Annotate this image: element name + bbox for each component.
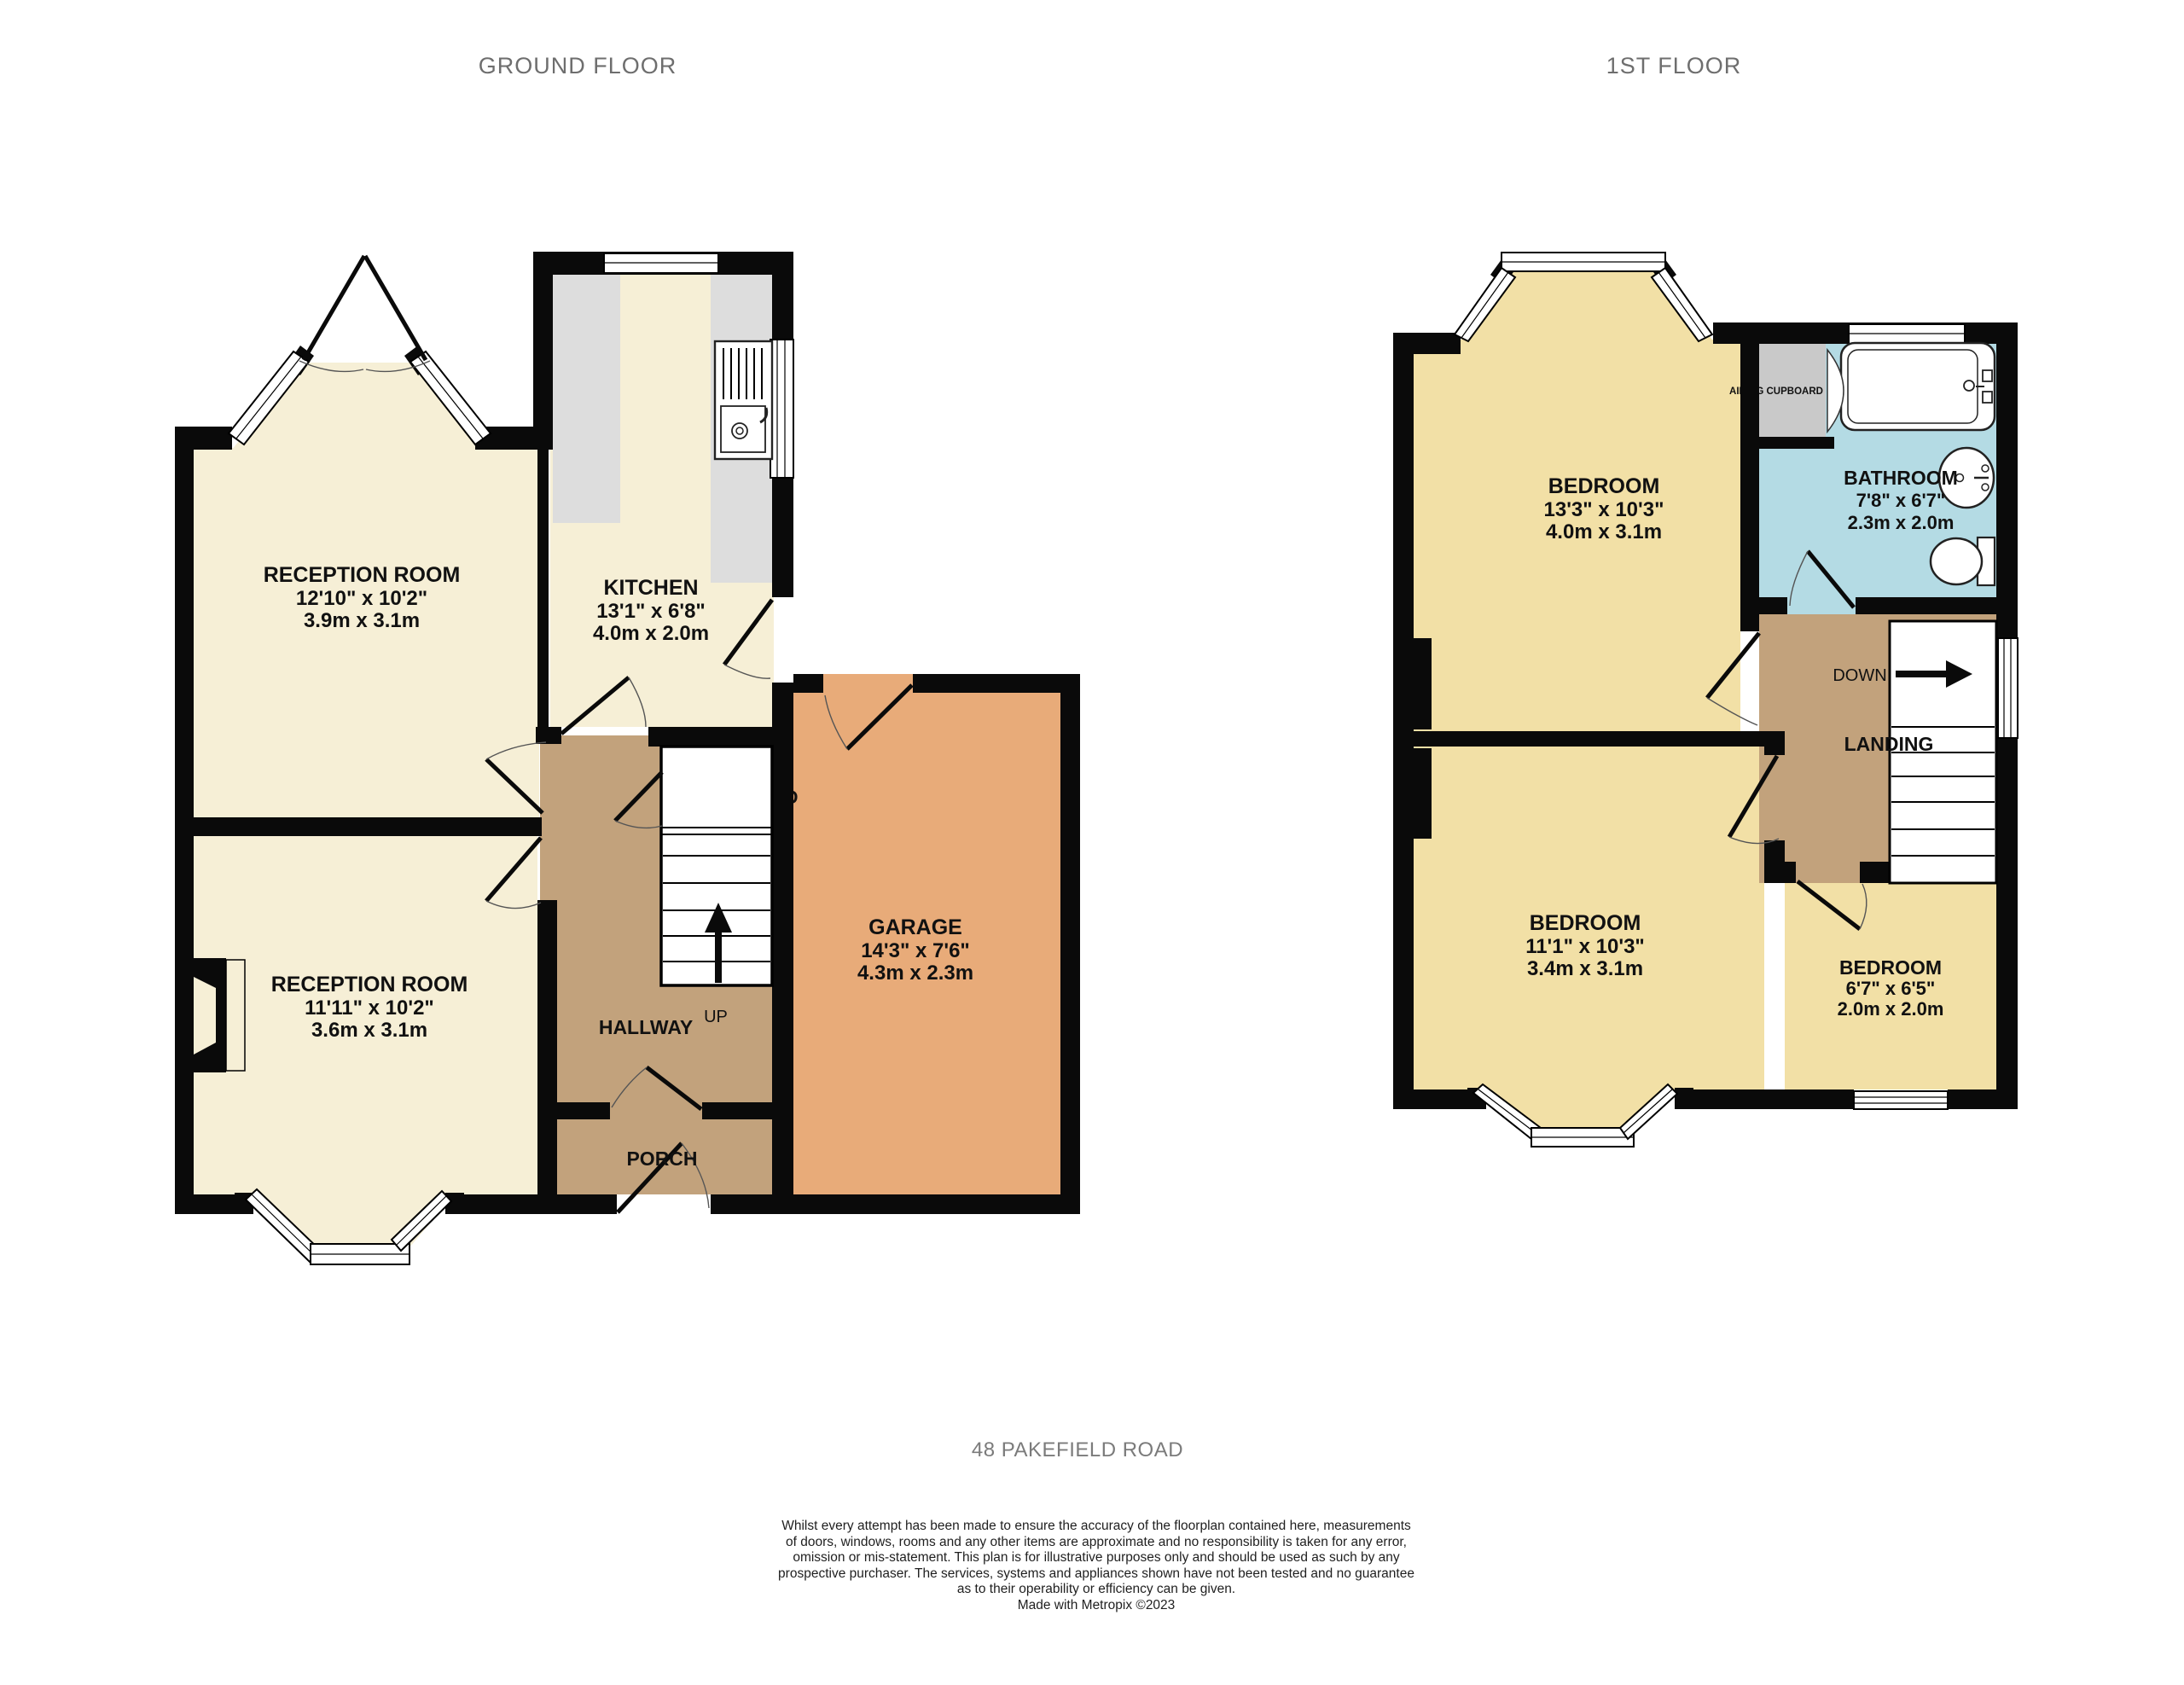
bay-window-reception2-bottom [311, 1244, 409, 1264]
garage-imperial: 14'3" x 7'6" [861, 939, 970, 962]
reception1-imperial: 12'10" x 10'2" [296, 587, 427, 610]
first-floor-plan: AIRING CUPBOARD [1393, 253, 2018, 1147]
kitchen-metric: 4.0m x 2.0m [593, 622, 709, 645]
hallway-label: HALLWAY [599, 1016, 693, 1038]
kitchen-sink-icon [715, 341, 772, 459]
bathroom-name: BATHROOM [1844, 467, 1958, 489]
up-label: UP [704, 1008, 728, 1026]
bedroom3-imperial: 6'7" x 6'5" [1846, 978, 1936, 999]
bedroom1-imperial: 13'3" x 10'3" [1544, 498, 1664, 521]
bathroom-window [1849, 324, 1965, 344]
bathroom-metric: 2.3m x 2.0m [1848, 512, 1955, 533]
bedroom2-metric: 3.4m x 3.1m [1527, 957, 1643, 980]
ground-floor-plan: CUPBOARD [175, 252, 1080, 1264]
bathroom-imperial: 7'8" x 6'7" [1856, 490, 1946, 511]
bedroom2-name: BEDROOM [1530, 911, 1641, 935]
disclaimer-line: prospective purchaser. The services, sys… [627, 1566, 1565, 1583]
down-label: DOWN [1833, 666, 1886, 685]
disclaimer-line: Made with Metropix ©2023 [627, 1598, 1565, 1614]
bedroom3-window [1854, 1091, 1948, 1109]
kitchen-counter-left [553, 275, 620, 523]
reception1-name: RECEPTION ROOM [264, 563, 461, 587]
bay-window-bedroom1-top [1501, 253, 1665, 271]
porch-label: PORCH [626, 1148, 697, 1170]
bedroom1-name: BEDROOM [1548, 474, 1660, 498]
bedroom1-metric: 4.0m x 3.1m [1546, 520, 1662, 543]
bathtub-icon [1841, 343, 1995, 430]
property-address: 48 PAKEFIELD ROAD [972, 1438, 1183, 1462]
disclaimer-line: Whilst every attempt has been made to en… [627, 1519, 1565, 1535]
landing-window [1998, 638, 2018, 738]
garage-name: GARAGE [868, 915, 962, 939]
kitchen-name: KITCHEN [603, 576, 698, 600]
reception2-name: RECEPTION ROOM [271, 973, 468, 996]
disclaimer-line: as to their operability or efficiency ca… [627, 1582, 1565, 1598]
ground-staircase [661, 747, 772, 985]
kitchen-imperial: 13'1" x 6'8" [596, 600, 706, 623]
disclaimer-line: omission or mis-statement. This plan is … [627, 1550, 1565, 1566]
disclaimer-line: of doors, windows, rooms and any other i… [627, 1535, 1565, 1551]
bedroom3-name: BEDROOM [1839, 956, 1942, 979]
bedroom3-metric: 2.0m x 2.0m [1838, 998, 1944, 1020]
garage-metric: 4.3m x 2.3m [857, 962, 973, 985]
landing-label: LANDING [1844, 733, 1934, 755]
kitchen-top-window [604, 253, 718, 273]
bedroom2-imperial: 11'1" x 10'3" [1525, 935, 1645, 958]
reception1-metric: 3.9m x 3.1m [304, 609, 420, 632]
reception2-metric: 3.6m x 3.1m [311, 1019, 427, 1042]
bay-window-bedroom2-bottom [1531, 1128, 1634, 1147]
kitchen-side-window [770, 340, 793, 478]
floorplan-canvas: CUPBOARD [0, 0, 2184, 1685]
fireplace-icon [194, 958, 245, 1072]
reception2-imperial: 11'11" x 10'2" [305, 996, 434, 1020]
disclaimer-text: Whilst every attempt has been made to en… [627, 1519, 1565, 1613]
toilet-icon [1931, 537, 1995, 585]
